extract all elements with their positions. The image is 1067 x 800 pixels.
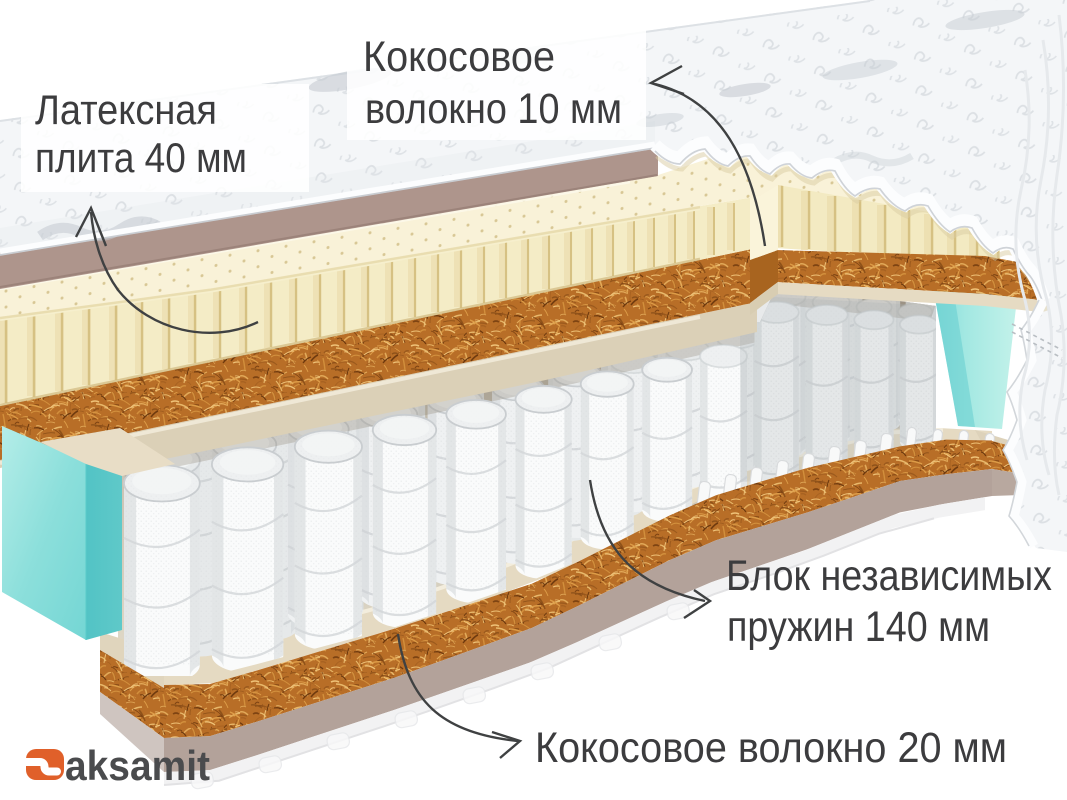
svg-text:Кокосовое: Кокосовое: [363, 33, 555, 81]
svg-text:волокно 10 мм: волокно 10 мм: [365, 85, 622, 133]
svg-text:Латексная: Латексная: [35, 86, 217, 133]
svg-text:Блок независимых: Блок независимых: [726, 552, 1052, 600]
svg-text:aksamit: aksamit: [65, 742, 210, 789]
svg-text:Кокосовое волокно 20 мм: Кокосовое волокно 20 мм: [535, 724, 1007, 772]
svg-text:пружин 140 мм: пружин 140 мм: [727, 603, 990, 651]
svg-text:плита 40 мм: плита 40 мм: [35, 134, 247, 181]
